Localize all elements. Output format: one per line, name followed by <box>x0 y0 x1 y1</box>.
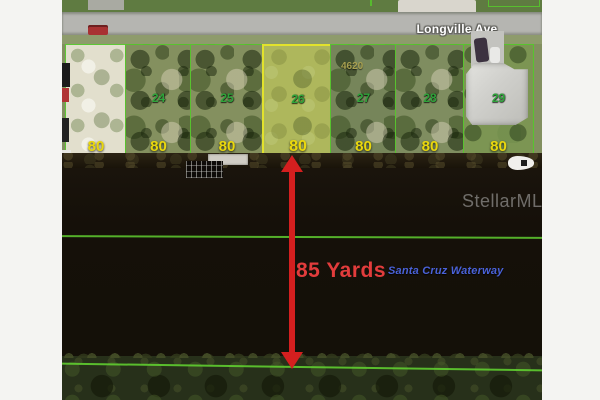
lot-number: 24 <box>126 91 191 105</box>
lot-boundary-24: 24 80 <box>125 44 192 155</box>
lot-number: 29 <box>464 91 533 105</box>
lot-number: 27 <box>331 91 396 105</box>
edge-red-vehicle <box>62 88 69 102</box>
boat-lift <box>186 161 223 178</box>
aerial-photo: Longville Ave 80 24 80 25 80 26 80 4620 … <box>62 0 542 400</box>
lot-boundary-27: 4620 27 80 <box>330 44 397 155</box>
edge-equipment <box>62 63 70 87</box>
measurement-arrow <box>289 170 295 354</box>
north-gray-patch <box>88 0 124 10</box>
north-lot-outline <box>488 0 540 7</box>
lot-boundary-28: 28 80 <box>395 44 465 155</box>
lot-boundary-cleared: 80 <box>65 44 127 155</box>
white-car <box>490 47 500 63</box>
waterway-label: Santa Cruz Waterway <box>388 265 503 277</box>
watermark: StellarMLS <box>462 191 542 212</box>
lot-boundary-26-highlighted: 26 80 <box>262 44 334 157</box>
lot-boundary-29: 29 80 <box>463 44 534 155</box>
parcel-tag: 4620 <box>341 61 363 72</box>
measurement-label: 85 Yards <box>296 259 386 283</box>
north-lot-line <box>370 0 372 6</box>
edge-dark-object <box>62 118 69 142</box>
arrow-head-down-icon <box>281 352 303 369</box>
red-car <box>88 25 108 35</box>
lot-boundary-25: 25 80 <box>190 44 264 155</box>
lot-number: 28 <box>396 91 464 105</box>
dark-car <box>474 37 490 62</box>
lot-number: 25 <box>191 91 263 105</box>
lot-number: 26 <box>264 92 332 106</box>
listing-photo-frame: Longville Ave 80 24 80 25 80 26 80 4620 … <box>0 0 600 400</box>
road-shoulder <box>62 35 542 44</box>
